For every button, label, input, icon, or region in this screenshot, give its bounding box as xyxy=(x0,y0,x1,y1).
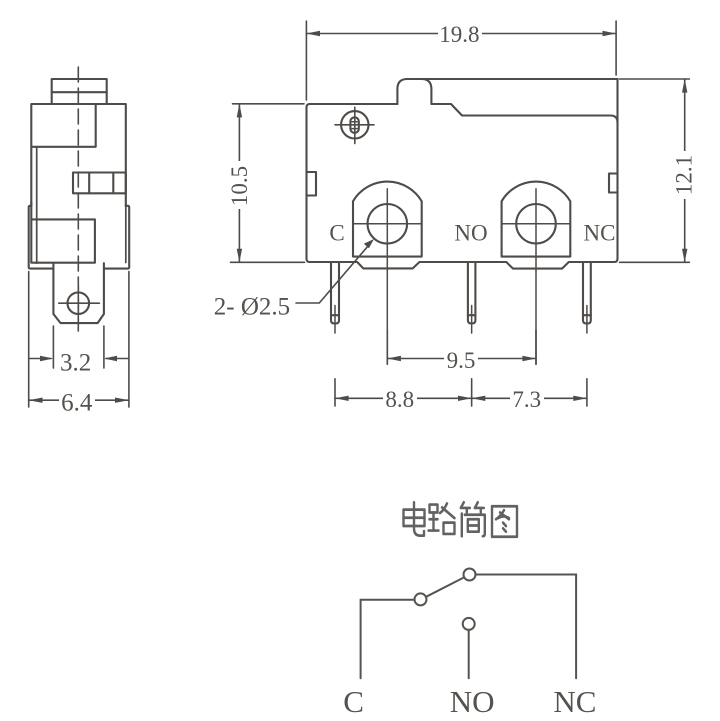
svg-text:NO: NO xyxy=(454,221,487,246)
svg-text:3.2: 3.2 xyxy=(60,350,91,377)
svg-text:7.3: 7.3 xyxy=(512,387,541,412)
svg-text:19.8: 19.8 xyxy=(439,22,479,47)
svg-text:NC: NC xyxy=(553,684,596,719)
svg-text:C: C xyxy=(329,221,344,246)
svg-text:2- Ø2.5: 2- Ø2.5 xyxy=(214,294,290,321)
svg-text:NC: NC xyxy=(584,221,616,246)
svg-text:NO: NO xyxy=(450,684,495,719)
svg-text:C: C xyxy=(343,684,364,719)
svg-text:10.5: 10.5 xyxy=(227,166,252,206)
svg-text:8.8: 8.8 xyxy=(385,387,414,412)
svg-text:6.4: 6.4 xyxy=(61,390,93,417)
svg-text:9.5: 9.5 xyxy=(447,348,476,373)
svg-text:12.1: 12.1 xyxy=(672,155,697,195)
